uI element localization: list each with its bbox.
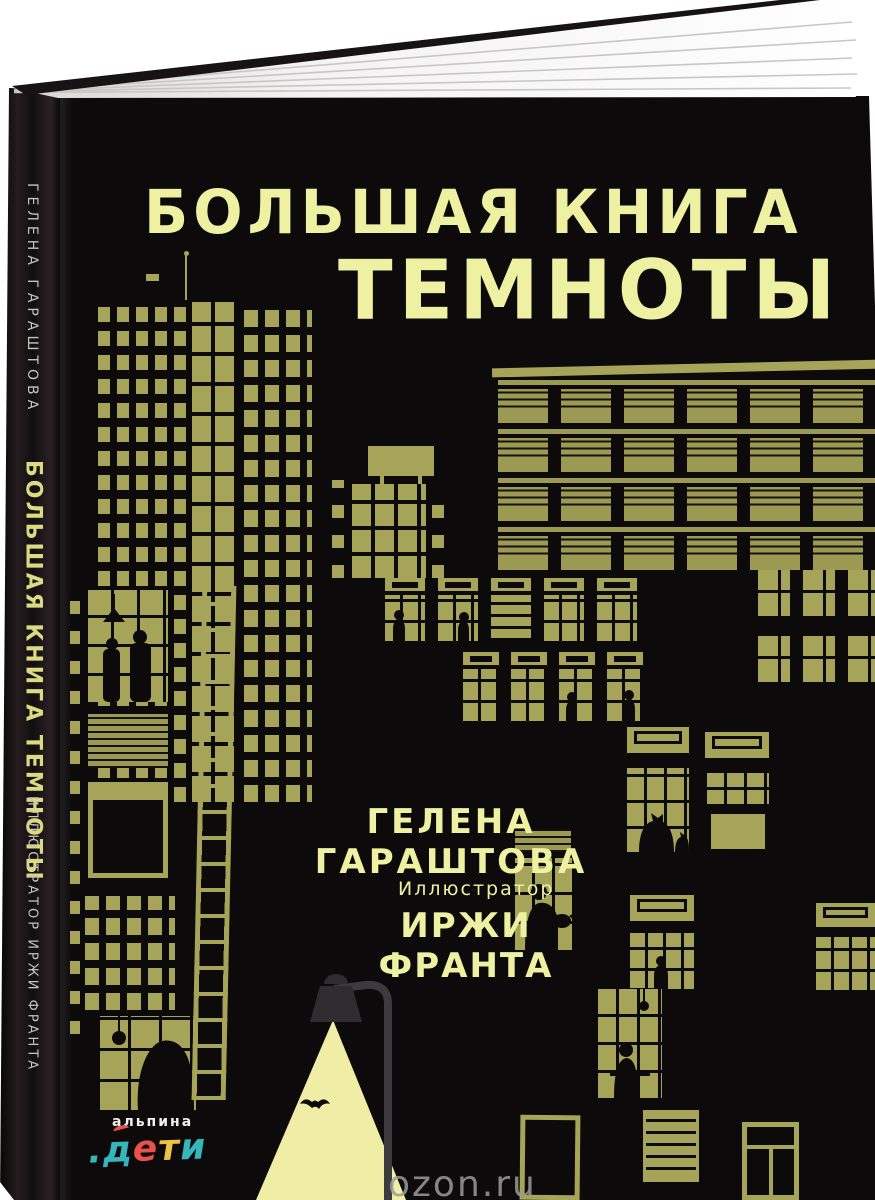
blind-window bbox=[561, 438, 611, 472]
sash-window bbox=[848, 570, 875, 616]
awning-window bbox=[463, 652, 499, 721]
window-awning bbox=[544, 578, 584, 591]
empty-panel-window bbox=[707, 770, 769, 853]
sash-window bbox=[758, 636, 790, 682]
billboard bbox=[368, 446, 434, 476]
person-silhouette bbox=[458, 621, 469, 641]
corner-window-row bbox=[758, 570, 875, 616]
person-silhouette bbox=[566, 701, 577, 721]
book-title-line1: БОЛЬШАЯ КНИГА bbox=[144, 177, 803, 248]
blind-window bbox=[498, 389, 548, 423]
window-awning bbox=[705, 732, 769, 758]
grid-window bbox=[597, 595, 637, 641]
window-awning bbox=[597, 578, 637, 591]
blind-window bbox=[750, 438, 800, 472]
window-awning bbox=[559, 652, 595, 665]
floor-band bbox=[498, 527, 875, 532]
awning-window bbox=[438, 578, 478, 641]
blind-window bbox=[561, 487, 611, 521]
blinds-window bbox=[88, 714, 168, 768]
publisher-letter: е bbox=[132, 1128, 159, 1170]
blind-window bbox=[498, 438, 548, 472]
book-front-cover: БОЛЬШАЯ КНИГА ТЕМНОТЫ bbox=[58, 96, 875, 1200]
shuttered-window bbox=[491, 595, 531, 641]
window-awning bbox=[627, 727, 689, 753]
awning-window bbox=[607, 652, 643, 721]
sash-window bbox=[803, 570, 835, 616]
book-product-photo: ГЕЛЕНА ГАРАШТОВА БОЛЬШАЯ КНИГА ТЕМНОТЫ И… bbox=[0, 0, 875, 1200]
sash-window bbox=[803, 636, 835, 682]
awning-window bbox=[511, 652, 547, 721]
corner-awning-window bbox=[816, 937, 875, 990]
blind-window bbox=[813, 438, 863, 472]
couple-window bbox=[88, 590, 168, 702]
corner-building bbox=[758, 570, 875, 698]
person-at-desk-silhouette bbox=[598, 988, 662, 1098]
floor-band bbox=[498, 478, 875, 483]
awning-window bbox=[491, 578, 531, 641]
blind-window bbox=[750, 536, 800, 570]
awning-window bbox=[597, 578, 637, 641]
corner-window-row bbox=[758, 636, 875, 682]
site-watermark: ozon.ru bbox=[388, 1164, 537, 1200]
spine-illustrator-text: ИЛЛЮСТРАТОР ИРЖИ ФРАНТА bbox=[24, 796, 39, 1072]
lower-grid-building bbox=[85, 896, 175, 1010]
blind-window bbox=[687, 438, 737, 472]
blind-window bbox=[624, 487, 674, 521]
blind-window bbox=[813, 536, 863, 570]
blind-window bbox=[687, 389, 737, 423]
window-awning bbox=[438, 578, 478, 591]
awning-window bbox=[385, 578, 425, 641]
hunched-person-silhouette bbox=[100, 1016, 196, 1110]
tower-window-grid bbox=[244, 302, 312, 802]
window-top-panes bbox=[707, 770, 769, 804]
window-awning bbox=[385, 578, 425, 591]
blind-window bbox=[687, 536, 737, 570]
blind-window bbox=[813, 389, 863, 423]
antenna-tip-icon bbox=[184, 251, 189, 256]
spine-text-strip: ГЕЛЕНА ГАРАШТОВА БОЛЬШАЯ КНИГА ТЕМНОТЫ И… bbox=[0, 88, 60, 1200]
figure-window bbox=[630, 933, 694, 989]
apartment-window-row bbox=[498, 536, 875, 570]
corner-notch bbox=[0, 1180, 20, 1200]
windows-dash-column bbox=[70, 594, 80, 1034]
apartment-window-row bbox=[498, 389, 875, 423]
publisher-letter: . bbox=[87, 1130, 103, 1171]
grid-window bbox=[544, 595, 584, 641]
window-awning bbox=[607, 652, 643, 665]
grid-window bbox=[438, 595, 478, 641]
window-row-lower bbox=[463, 652, 643, 721]
blind-window bbox=[624, 536, 674, 570]
light-beam bbox=[256, 1020, 406, 1200]
blind-window bbox=[624, 438, 674, 472]
sash-window-frame bbox=[742, 1122, 799, 1200]
window-awning bbox=[491, 578, 531, 591]
blind-window bbox=[750, 389, 800, 423]
apartment-building bbox=[498, 366, 875, 564]
window-lintel bbox=[93, 787, 163, 803]
window-awning bbox=[463, 652, 499, 665]
blind-window bbox=[561, 389, 611, 423]
book-page-edges bbox=[0, 0, 875, 105]
sash-mullion bbox=[769, 1149, 773, 1195]
awning-window bbox=[559, 652, 595, 721]
windows-dash-column bbox=[432, 490, 444, 578]
window-bottom-panel bbox=[707, 810, 769, 853]
person-silhouette bbox=[623, 699, 635, 721]
mid-tower-building bbox=[332, 480, 444, 578]
blind-window bbox=[624, 389, 674, 423]
grid-window bbox=[385, 595, 425, 641]
sash-window bbox=[758, 570, 790, 616]
lamp-head bbox=[310, 986, 362, 1022]
window-awning bbox=[511, 652, 547, 665]
desk-window bbox=[598, 988, 662, 1098]
grid-window bbox=[559, 669, 595, 721]
blind-window bbox=[813, 487, 863, 521]
lamp-cap bbox=[324, 974, 348, 984]
floor-band bbox=[498, 380, 875, 385]
antenna-icon bbox=[185, 254, 187, 300]
grid-window bbox=[607, 669, 643, 721]
awning-window bbox=[544, 578, 584, 641]
couple-silhouette bbox=[88, 590, 168, 702]
person-silhouette bbox=[654, 965, 668, 989]
shuttered-window bbox=[643, 1110, 699, 1182]
blind-window bbox=[498, 487, 548, 521]
window-awning bbox=[630, 895, 694, 921]
building-cornice bbox=[492, 360, 875, 378]
book-spine: ГЕЛЕНА ГАРАШТОВА БОЛЬШАЯ КНИГА ТЕМНОТЫ И… bbox=[0, 88, 60, 1200]
window-awning bbox=[816, 903, 875, 927]
windows-dash-column bbox=[332, 480, 344, 578]
window-row-upper bbox=[385, 578, 637, 641]
publisher-letter: т bbox=[157, 1127, 180, 1169]
dark-opening-window bbox=[88, 782, 168, 878]
big-grid-window bbox=[352, 484, 426, 578]
publisher-letter: д bbox=[102, 1129, 133, 1171]
apartment-window-row bbox=[498, 438, 875, 472]
publisher-script-word: .дети bbox=[87, 1127, 238, 1170]
illustrator-label: Иллюстратор bbox=[398, 878, 528, 900]
sash-window bbox=[848, 636, 875, 682]
blind-window bbox=[498, 536, 548, 570]
rooftop-sign-icon bbox=[146, 274, 159, 281]
blind-window bbox=[750, 487, 800, 521]
publisher-letter: и bbox=[179, 1127, 207, 1169]
author-name: ГЕЛЕНА ГАРАШТОВА bbox=[246, 802, 656, 882]
person-silhouette bbox=[393, 619, 405, 641]
floor-band bbox=[498, 429, 875, 434]
reading-person-window bbox=[100, 1016, 196, 1110]
apartment-window-row bbox=[498, 487, 875, 521]
spine-author-text: ГЕЛЕНА ГАРАШТОВА bbox=[24, 183, 40, 414]
grid-window bbox=[511, 669, 547, 721]
book-title-line2: ТЕМНОТЫ bbox=[338, 243, 814, 338]
grid-window bbox=[463, 669, 499, 721]
publisher-logo: альпина .дети bbox=[88, 1114, 238, 1168]
blind-window bbox=[687, 487, 737, 521]
blind-window bbox=[561, 536, 611, 570]
corner-sliver bbox=[863, 96, 875, 306]
